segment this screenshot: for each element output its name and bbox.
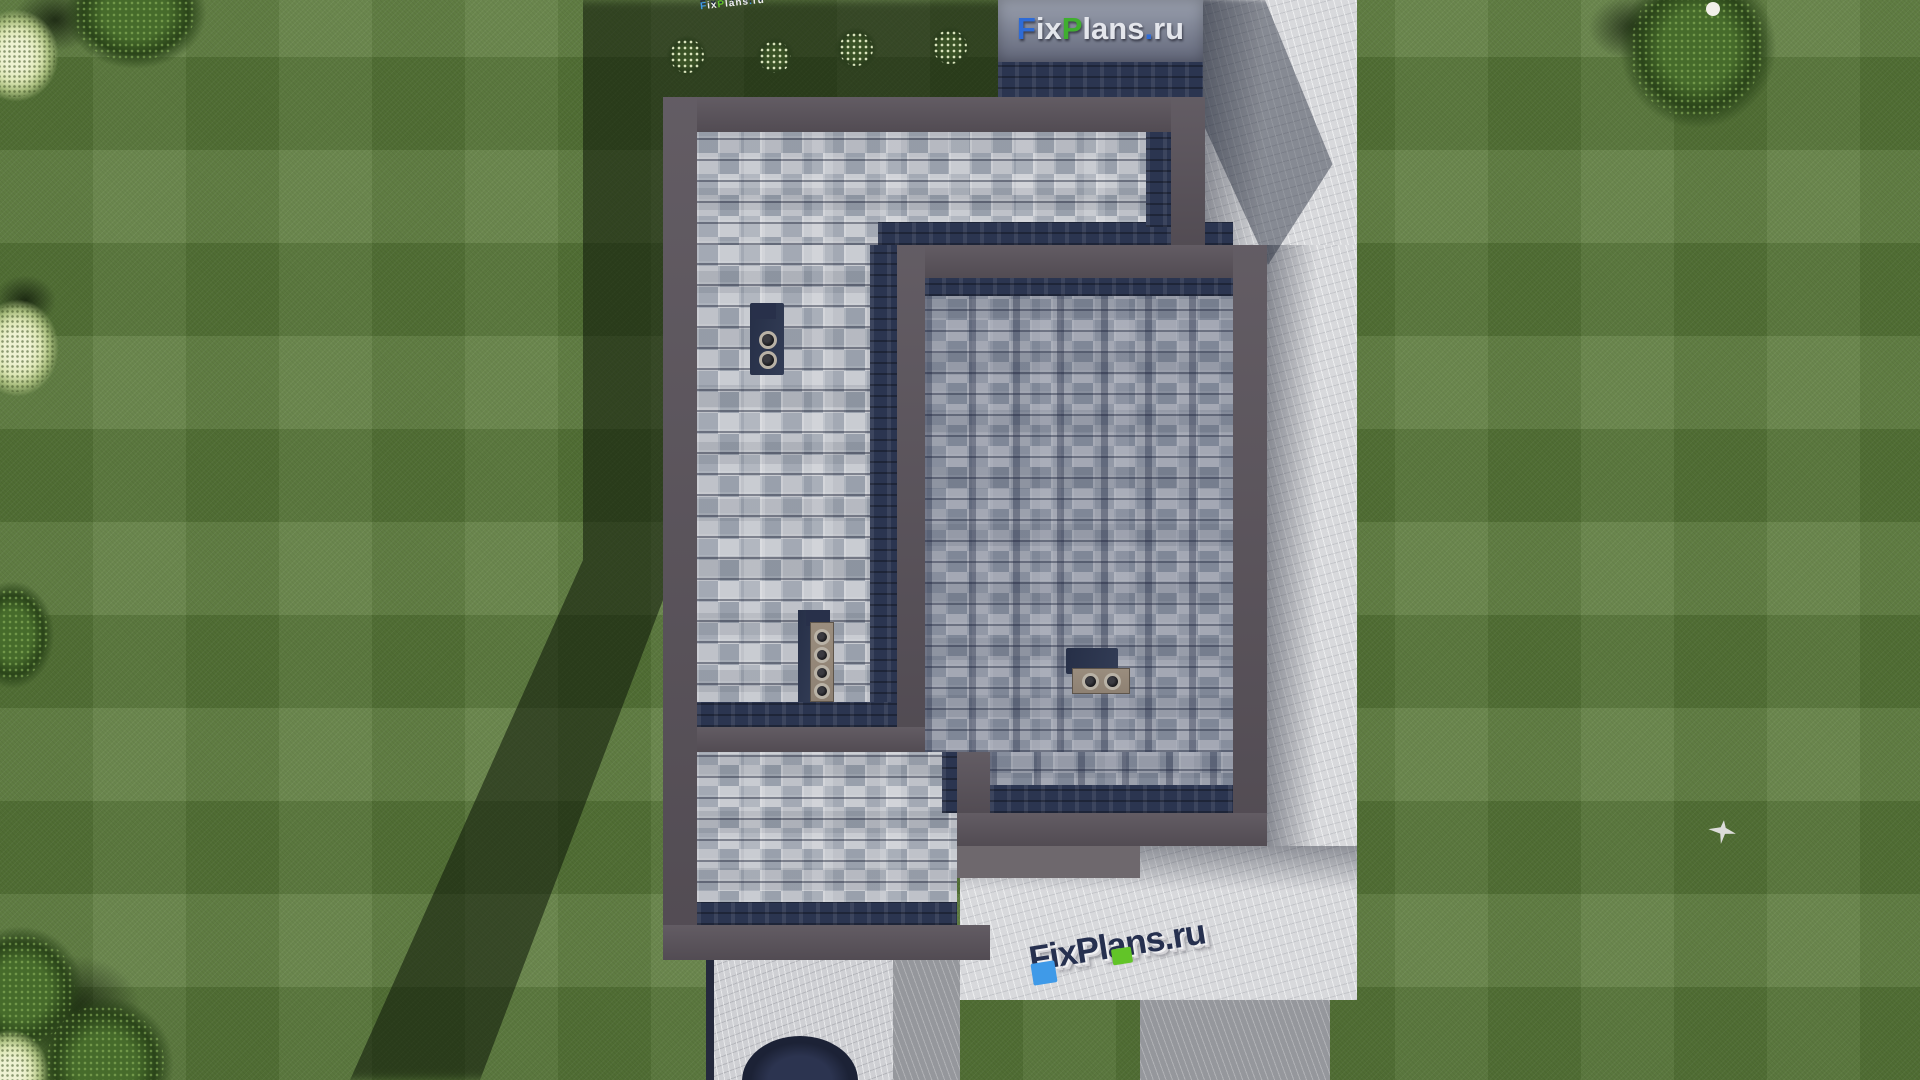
roof-a-parapet-top: [663, 97, 1205, 132]
chimney-3: [1066, 646, 1130, 694]
watermark-3d: FixPlans.ru: [1028, 922, 1258, 1017]
scene-aerial-house-render: FixPlans.ru FixPlans.ru FixPlans.ru: [0, 0, 1920, 1080]
roof-a-parapet-bottom: [663, 925, 990, 960]
shadow-band-roof-a-right: [1146, 132, 1171, 227]
roof-b-parapet-top: [897, 245, 1267, 278]
watermark-blue-face: [1030, 960, 1057, 985]
logo-billboard: FixPlans.ru: [998, 0, 1203, 62]
roof-a-parapet-right: [1171, 97, 1205, 245]
shadow-band-roof-b-top: [925, 278, 1233, 296]
logo-text: FixPlans.ru: [998, 0, 1203, 47]
walkway-edge-shadow: [706, 960, 714, 1080]
billboard-base-shadow: [998, 58, 1203, 100]
bush: [754, 36, 796, 78]
roof-b-parapet-bottom: [957, 813, 1267, 846]
watermark-green-face: [1111, 947, 1133, 966]
logo-letter: ix: [1036, 11, 1062, 46]
patio-right-top: [1203, 0, 1357, 245]
roof-b-outer-ledge: [957, 846, 1140, 878]
tree-flower-white: [1706, 2, 1720, 16]
chimney-1-cap: [752, 303, 776, 319]
chimney-2: [798, 610, 836, 702]
vent-pipe: [814, 683, 830, 699]
bush: [665, 34, 709, 78]
bush: [928, 25, 972, 69]
logo-letter: ru: [1169, 912, 1208, 956]
logo-letter: F: [1017, 11, 1036, 46]
shadow-band-left-of-roof-b: [870, 245, 897, 727]
shadow-band-roof-b-step: [942, 752, 957, 813]
roof-b-parapet-right: [1233, 245, 1267, 846]
shadow-band-roof-b-bottom: [990, 785, 1233, 813]
vent-pipe: [759, 331, 777, 349]
logo-letter: P: [1062, 11, 1083, 46]
roof-b-parapet-step: [957, 752, 990, 813]
vent-pipe: [1104, 673, 1121, 690]
roof-a-field-left: [697, 245, 878, 727]
logo-letter: lans: [1082, 11, 1144, 46]
chimney-1: [750, 303, 784, 375]
chimney-3-body: [1072, 668, 1130, 694]
bush: [833, 26, 879, 72]
vent-pipe: [814, 629, 830, 645]
path-gray-bottom-center: [893, 960, 960, 1080]
logo-letter: .: [1144, 11, 1153, 46]
vent-pipe: [759, 351, 777, 369]
vent-pipe: [814, 665, 830, 681]
vent-pipe: [814, 647, 830, 663]
roof-a-parapet-left: [663, 97, 697, 960]
roof-b-parapet-left: [897, 245, 925, 727]
patio-right-strip: [1267, 245, 1357, 846]
shadow-band-roof-a-bottom: [697, 902, 957, 925]
logo-letter: ru: [1153, 11, 1184, 46]
vent-pipe: [1082, 673, 1099, 690]
